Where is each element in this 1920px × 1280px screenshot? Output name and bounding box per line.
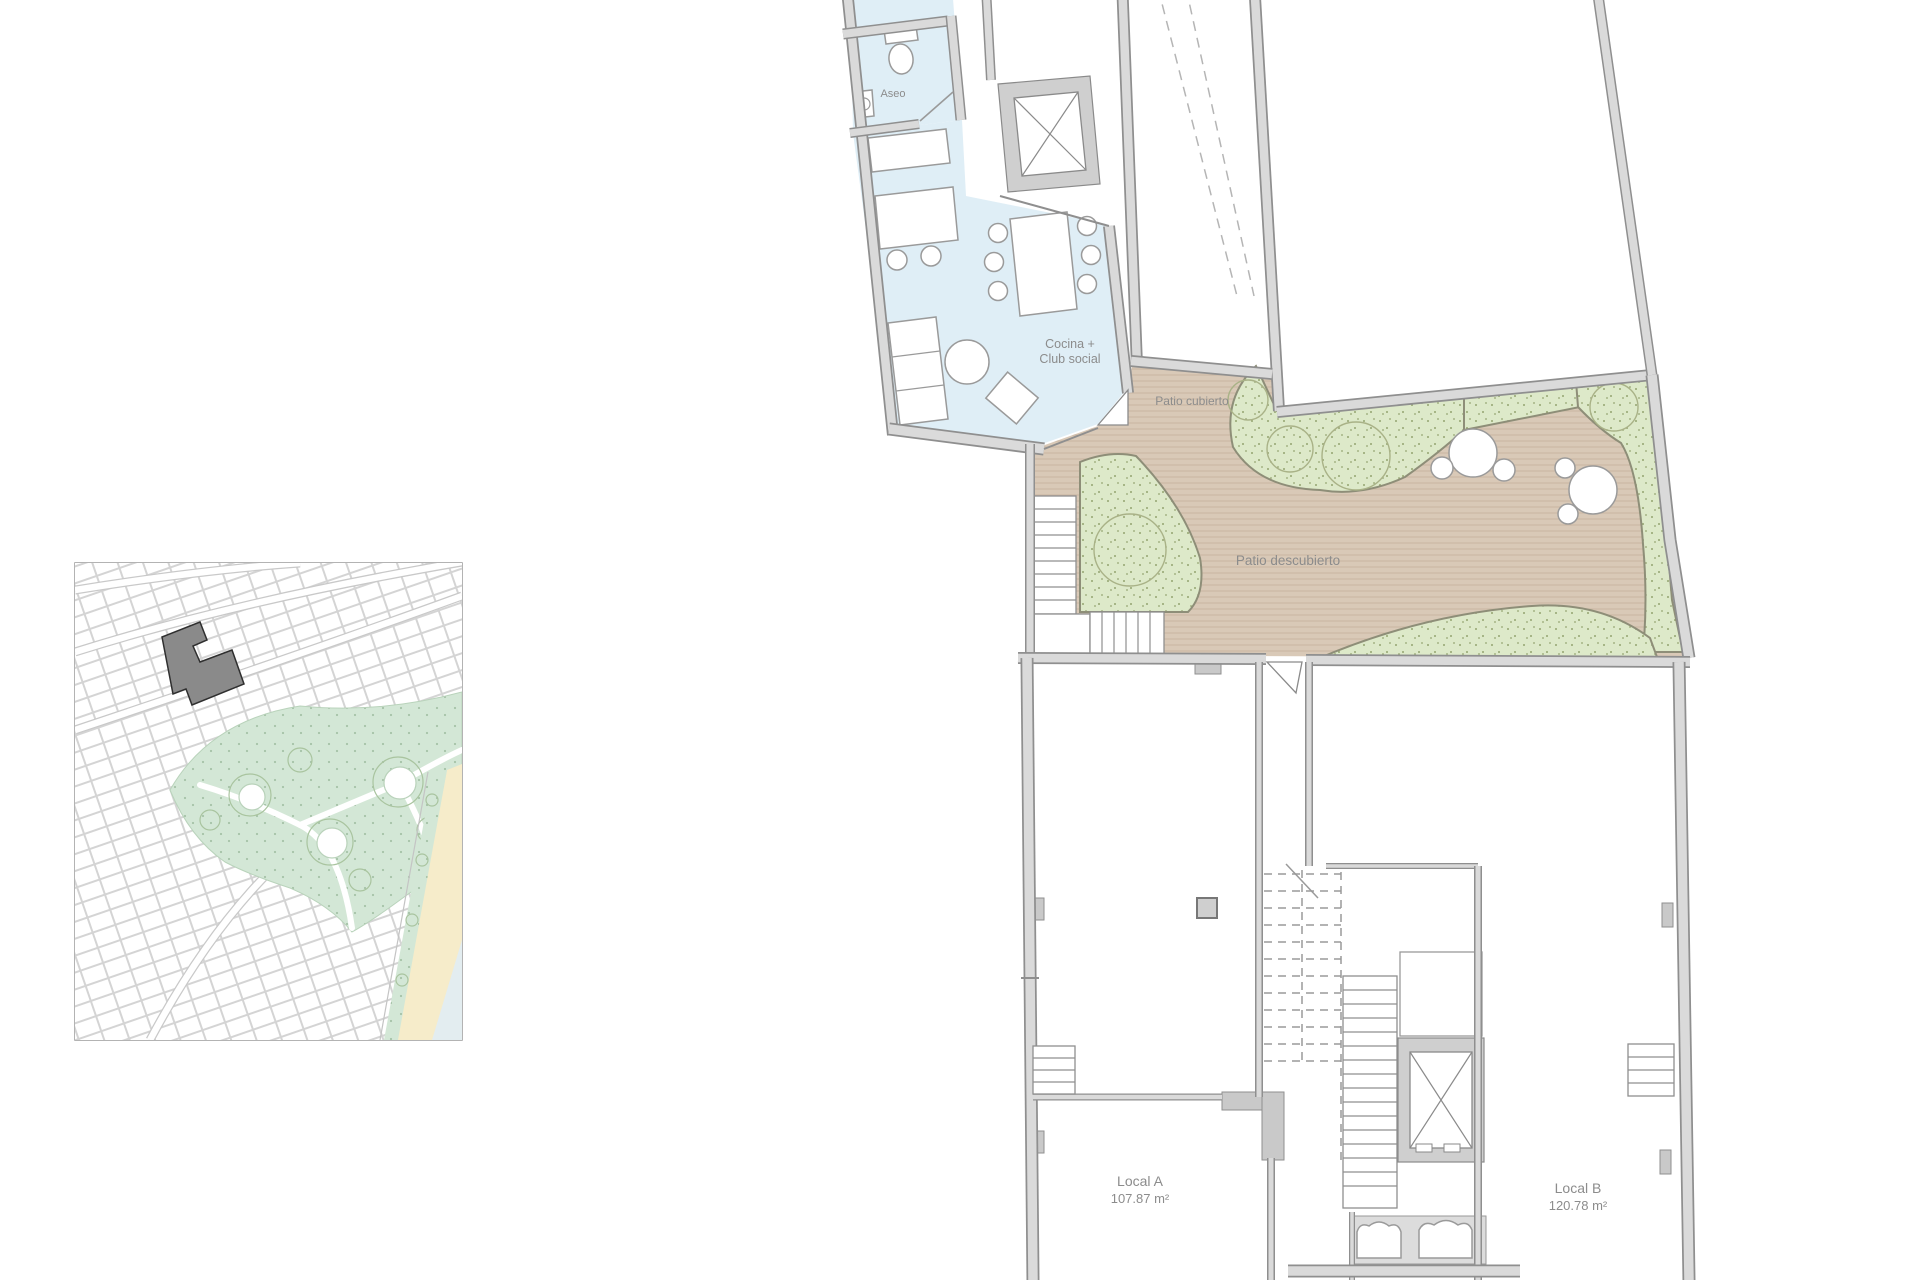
site-map [75, 562, 462, 1040]
label-cocina-line2: Club social [1039, 352, 1100, 366]
floorplan-sheet: Aseo Cocina + Club social Patio cubierto… [0, 0, 1920, 1280]
wc-fixtures [1350, 1216, 1486, 1264]
stool-icon [921, 246, 941, 266]
door-swing-line [1286, 864, 1318, 898]
round-table-icon [945, 340, 989, 384]
round-table-icon [1569, 466, 1617, 514]
round-table-icon [1449, 429, 1497, 477]
ramp-lines [1158, 0, 1254, 300]
chair-icon [989, 224, 1008, 243]
stool-icon [887, 250, 907, 270]
plan-drawing: Aseo Cocina + Club social Patio cubierto… [0, 0, 1920, 1280]
label-patio-cubierto: Patio cubierto [1155, 394, 1229, 408]
chair-icon [989, 282, 1008, 301]
label-patio-descubierto: Patio descubierto [1236, 553, 1340, 568]
door-local-b [1267, 662, 1302, 693]
label-cocina-line1: Cocina + [1045, 337, 1095, 351]
elevator-core [1398, 1038, 1484, 1162]
chair-icon [1558, 504, 1578, 524]
chair-icon [985, 253, 1004, 272]
core-closet [1400, 952, 1482, 1036]
sink-icon [1357, 1222, 1401, 1258]
stairs-flight-a [1032, 496, 1076, 614]
label-local-a-name: Local A [1117, 1173, 1164, 1189]
kitchen-island [875, 187, 958, 249]
chair-icon [1493, 459, 1515, 481]
floor-plan: Aseo Cocina + Club social Patio cubierto… [843, 0, 1690, 1280]
label-local-b-name: Local B [1555, 1180, 1602, 1196]
wall-chunk [1262, 1092, 1284, 1160]
chair-icon [1078, 275, 1097, 294]
stairs-landing [1032, 614, 1090, 655]
elevator-club [998, 76, 1100, 192]
sink-icon [1419, 1221, 1472, 1259]
label-local-a-area: 107.87 m² [1111, 1191, 1170, 1206]
column [1197, 898, 1217, 918]
label-local-b-area: 120.78 m² [1549, 1198, 1608, 1213]
stairs-solid-flight [1343, 976, 1397, 1208]
dining-table [1010, 212, 1077, 316]
label-aseo: Aseo [880, 88, 905, 100]
stairs-flight-b [1090, 612, 1164, 655]
chair-icon [1555, 458, 1575, 478]
chair-icon [1082, 246, 1101, 265]
chair-icon [1431, 457, 1453, 479]
